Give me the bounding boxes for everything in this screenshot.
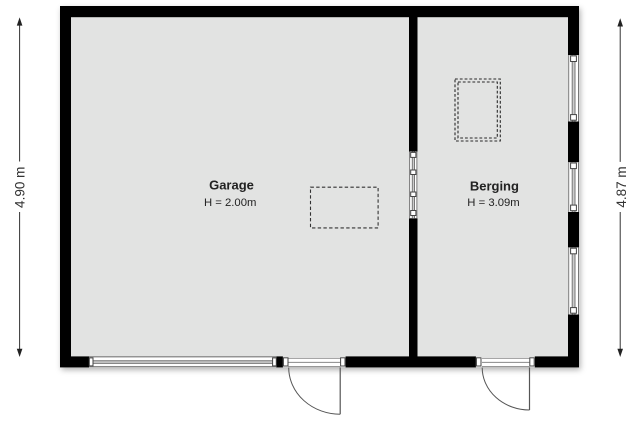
svg-text:H = 3.09m: H = 3.09m bbox=[467, 197, 519, 209]
svg-text:Berging: Berging bbox=[470, 178, 519, 193]
svg-text:Garage: Garage bbox=[209, 178, 254, 193]
svg-text:4.90 m: 4.90 m bbox=[13, 167, 28, 208]
svg-text:H = 2.00m: H = 2.00m bbox=[204, 197, 256, 209]
svg-text:4.87 m: 4.87 m bbox=[614, 166, 629, 207]
